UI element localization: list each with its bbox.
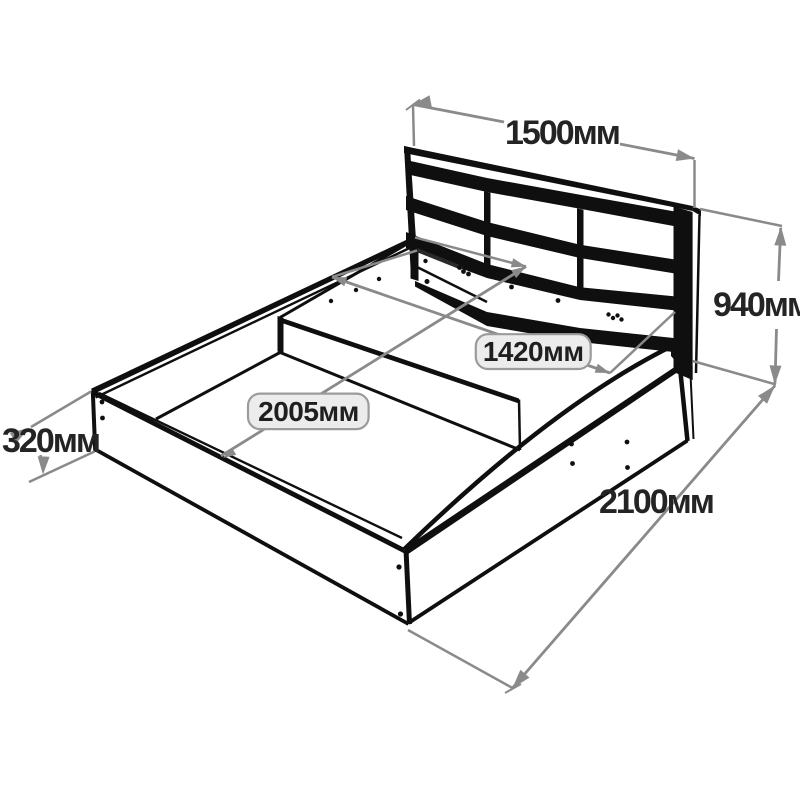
svg-text:940мм: 940мм xyxy=(713,286,800,324)
svg-text:1420мм: 1420мм xyxy=(483,336,584,367)
svg-text:2005мм: 2005мм xyxy=(258,396,359,427)
svg-text:320мм: 320мм xyxy=(2,422,99,460)
svg-text:2100мм: 2100мм xyxy=(599,483,713,521)
svg-text:1500мм: 1500мм xyxy=(505,114,619,152)
